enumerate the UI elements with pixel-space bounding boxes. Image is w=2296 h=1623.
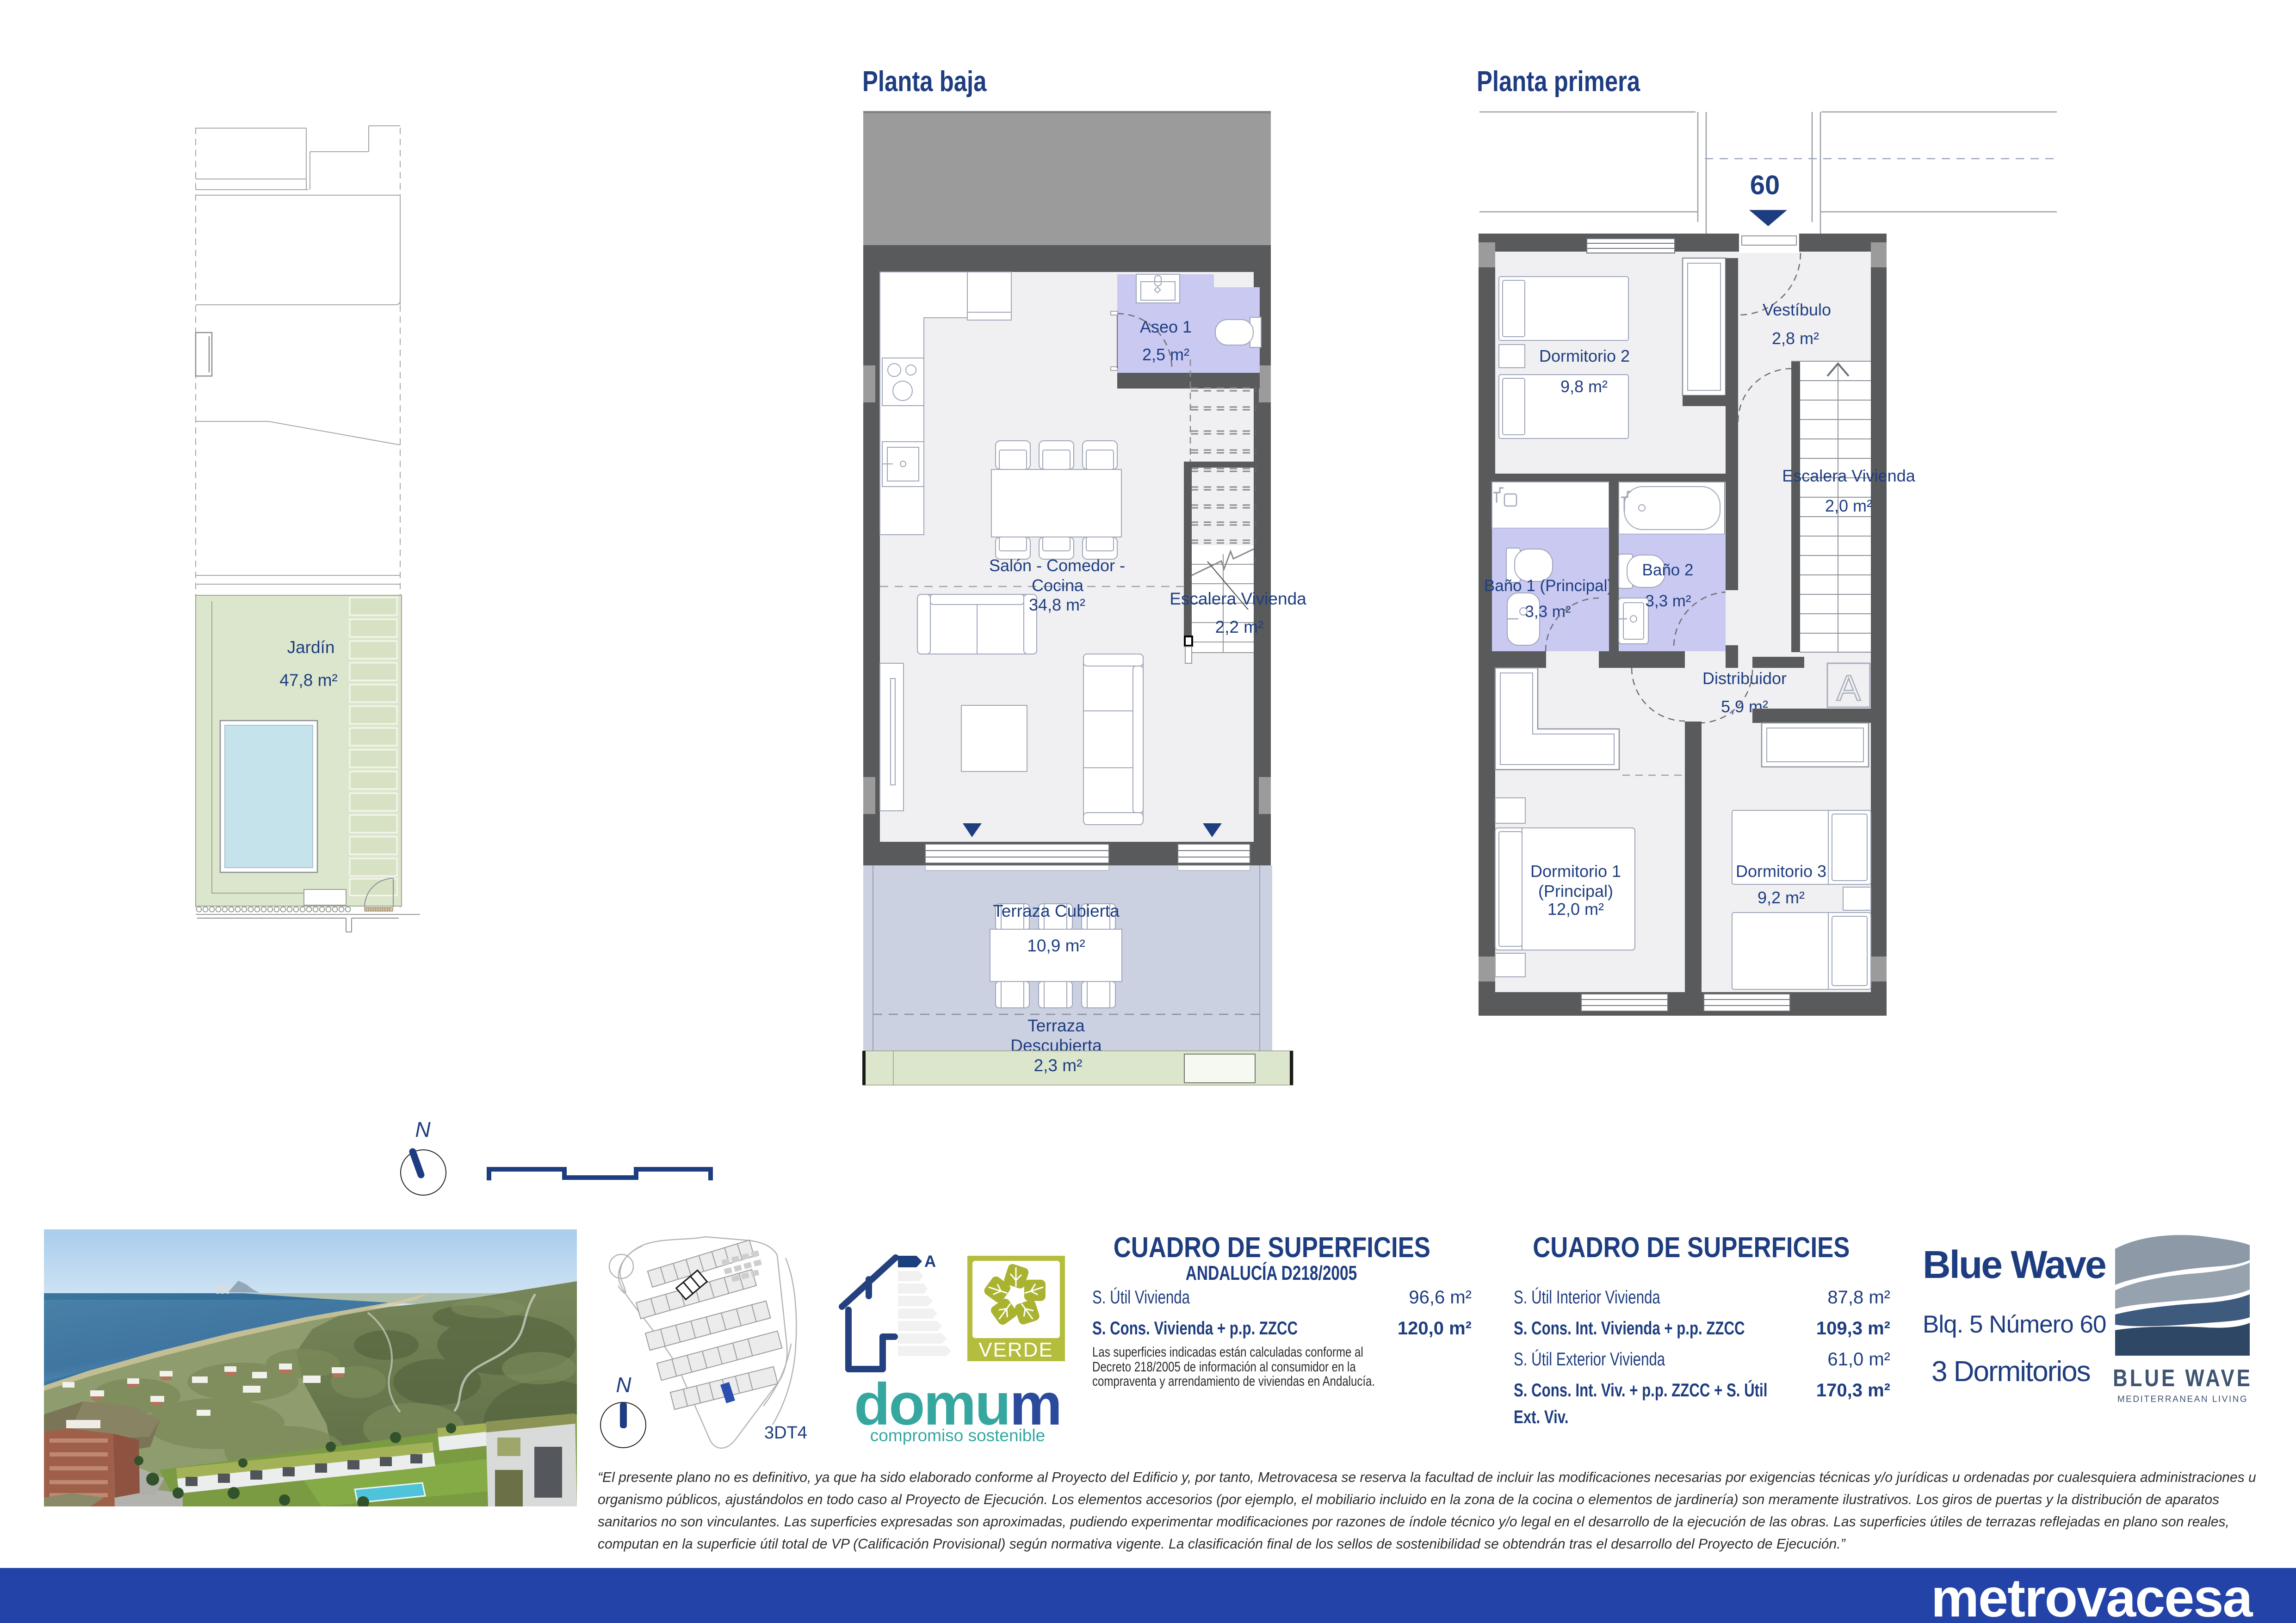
svg-text:MEDITERRANEAN LIVING: MEDITERRANEAN LIVING <box>2117 1395 2248 1404</box>
svg-text:compromiso sostenible: compromiso sostenible <box>870 1426 1045 1445</box>
svg-text:Terraza Cubierta: Terraza Cubierta <box>993 901 1120 920</box>
svg-text:34,8 m²: 34,8 m² <box>1029 595 1085 614</box>
svg-text:Baño 1 (Principal): Baño 1 (Principal) <box>1484 577 1613 595</box>
svg-text:9,2 m²: 9,2 m² <box>1758 888 1805 907</box>
svg-text:10,9 m²: 10,9 m² <box>1027 936 1085 955</box>
svg-text:2,3 m²: 2,3 m² <box>1034 1056 1083 1075</box>
svg-text:Dormitorio 1: Dormitorio 1 <box>1530 862 1621 881</box>
svg-text:60: 60 <box>1750 170 1780 200</box>
svg-text:47,8 m²: 47,8 m² <box>279 671 337 690</box>
svg-text:A: A <box>1837 667 1861 708</box>
svg-text:2,0 m²: 2,0 m² <box>1825 496 1872 515</box>
svg-text:Distribuidor: Distribuidor <box>1702 669 1787 688</box>
svg-text:Salón - Comedor -: Salón - Comedor - <box>989 556 1125 575</box>
svg-text:N: N <box>415 1117 431 1142</box>
svg-text:N: N <box>616 1373 631 1397</box>
svg-text:Cocina: Cocina <box>1032 576 1084 595</box>
svg-text:Baño 2: Baño 2 <box>1642 561 1694 579</box>
svg-text:Jardín: Jardín <box>287 638 335 657</box>
svg-text:A: A <box>924 1253 936 1271</box>
svg-text:Escalera Vivienda: Escalera Vivienda <box>1782 466 1915 485</box>
svg-text:2,2 m²: 2,2 m² <box>1215 617 1264 636</box>
svg-text:VERDE: VERDE <box>978 1339 1053 1361</box>
svg-text:Vestíbulo: Vestíbulo <box>1763 300 1831 319</box>
svg-text:12,0 m²: 12,0 m² <box>1547 900 1604 919</box>
svg-text:Escalera Vivienda: Escalera Vivienda <box>1170 589 1306 608</box>
svg-text:Terraza: Terraza <box>1027 1016 1085 1035</box>
svg-text:9,8 m²: 9,8 m² <box>1560 377 1608 396</box>
svg-text:3DT4: 3DT4 <box>764 1423 807 1443</box>
svg-text:(Principal): (Principal) <box>1538 882 1613 901</box>
svg-text:BLUE WAVE: BLUE WAVE <box>2113 1365 2253 1392</box>
svg-text:Dormitorio 2: Dormitorio 2 <box>1539 346 1630 365</box>
svg-text:3,3 m²: 3,3 m² <box>1645 592 1691 610</box>
svg-text:Aseo 1: Aseo 1 <box>1140 317 1192 336</box>
svg-text:Dormitorio 3: Dormitorio 3 <box>1736 862 1826 881</box>
svg-text:2,5 m²: 2,5 m² <box>1142 345 1189 364</box>
svg-text:2,8 m²: 2,8 m² <box>1772 329 1819 348</box>
